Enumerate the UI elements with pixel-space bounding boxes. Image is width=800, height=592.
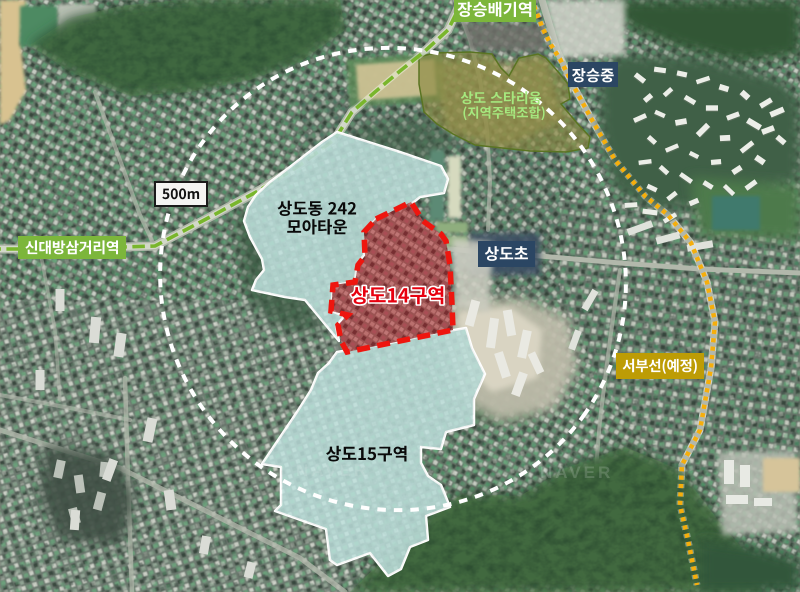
svg-text:NAVER: NAVER: [540, 463, 613, 482]
svg-text:NAVER: NAVER: [296, 461, 369, 480]
